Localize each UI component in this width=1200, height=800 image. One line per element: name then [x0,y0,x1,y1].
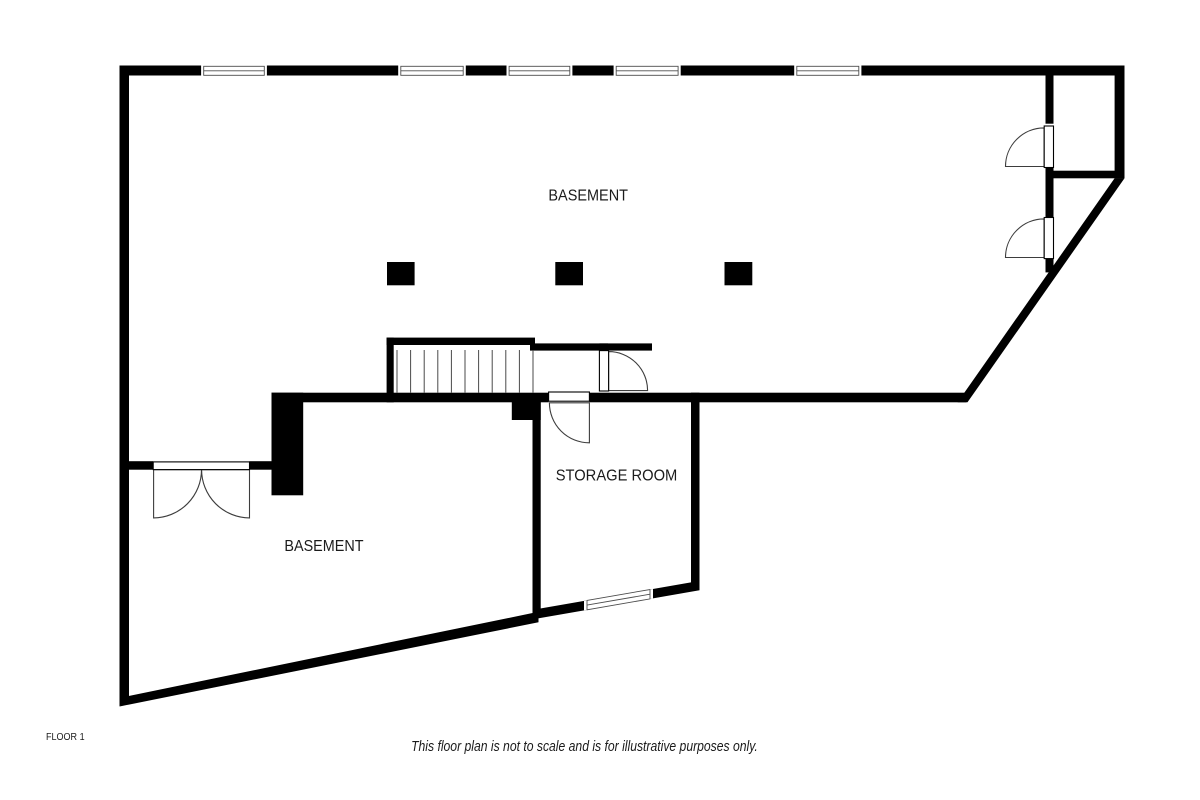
svg-text:BASEMENT: BASEMENT [284,538,363,555]
svg-text:FLOOR 1: FLOOR 1 [46,731,85,743]
svg-text:STORAGE ROOM: STORAGE ROOM [556,467,678,484]
svg-text:BASEMENT: BASEMENT [548,188,628,205]
svg-text:This floor plan is not to scal: This floor plan is not to scale and is f… [411,738,758,755]
